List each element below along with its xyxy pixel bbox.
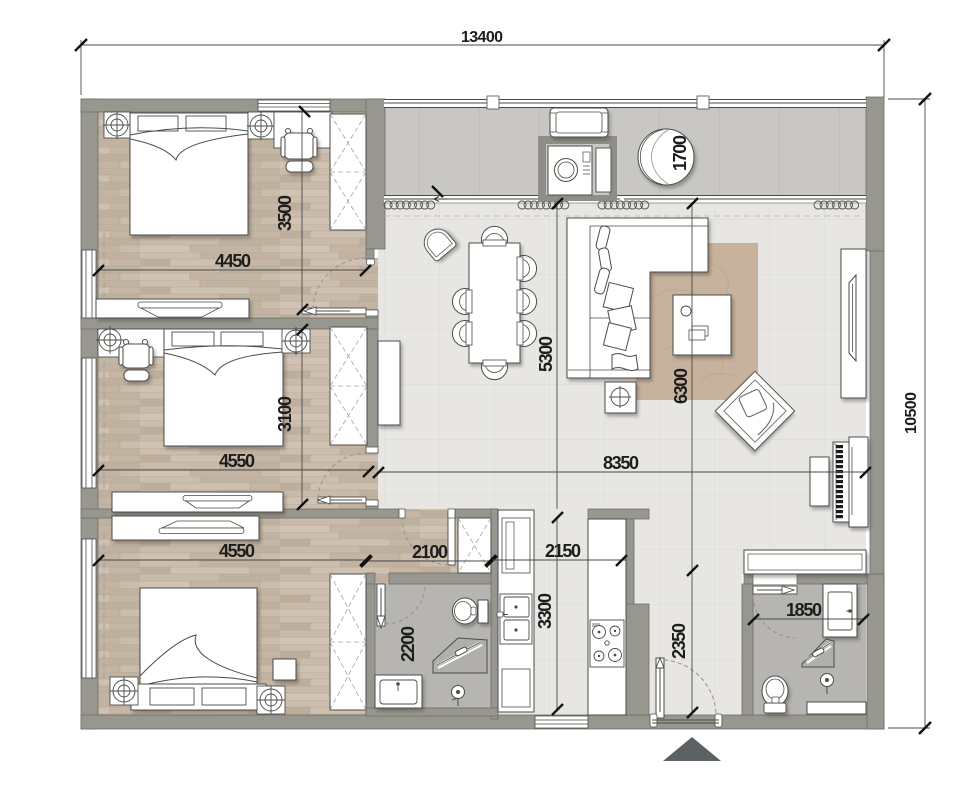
svg-text:1700: 1700 (670, 135, 690, 171)
svg-text:3500: 3500 (275, 195, 295, 231)
svg-text:8350: 8350 (603, 453, 639, 473)
svg-text:4450: 4450 (215, 251, 251, 271)
svg-text:3100: 3100 (275, 396, 295, 432)
svg-text:10500: 10500 (903, 392, 920, 434)
svg-text:2350: 2350 (669, 623, 689, 659)
svg-text:4550: 4550 (219, 541, 255, 561)
svg-text:1850: 1850 (786, 600, 822, 620)
svg-text:3300: 3300 (535, 593, 555, 629)
svg-text:6300: 6300 (671, 368, 691, 404)
svg-text:5300: 5300 (536, 336, 556, 372)
svg-text:2200: 2200 (398, 626, 418, 662)
svg-text:13400: 13400 (461, 29, 503, 46)
svg-text:4550: 4550 (219, 451, 255, 471)
svg-text:2100: 2100 (412, 542, 448, 562)
svg-text:2150: 2150 (545, 541, 581, 561)
